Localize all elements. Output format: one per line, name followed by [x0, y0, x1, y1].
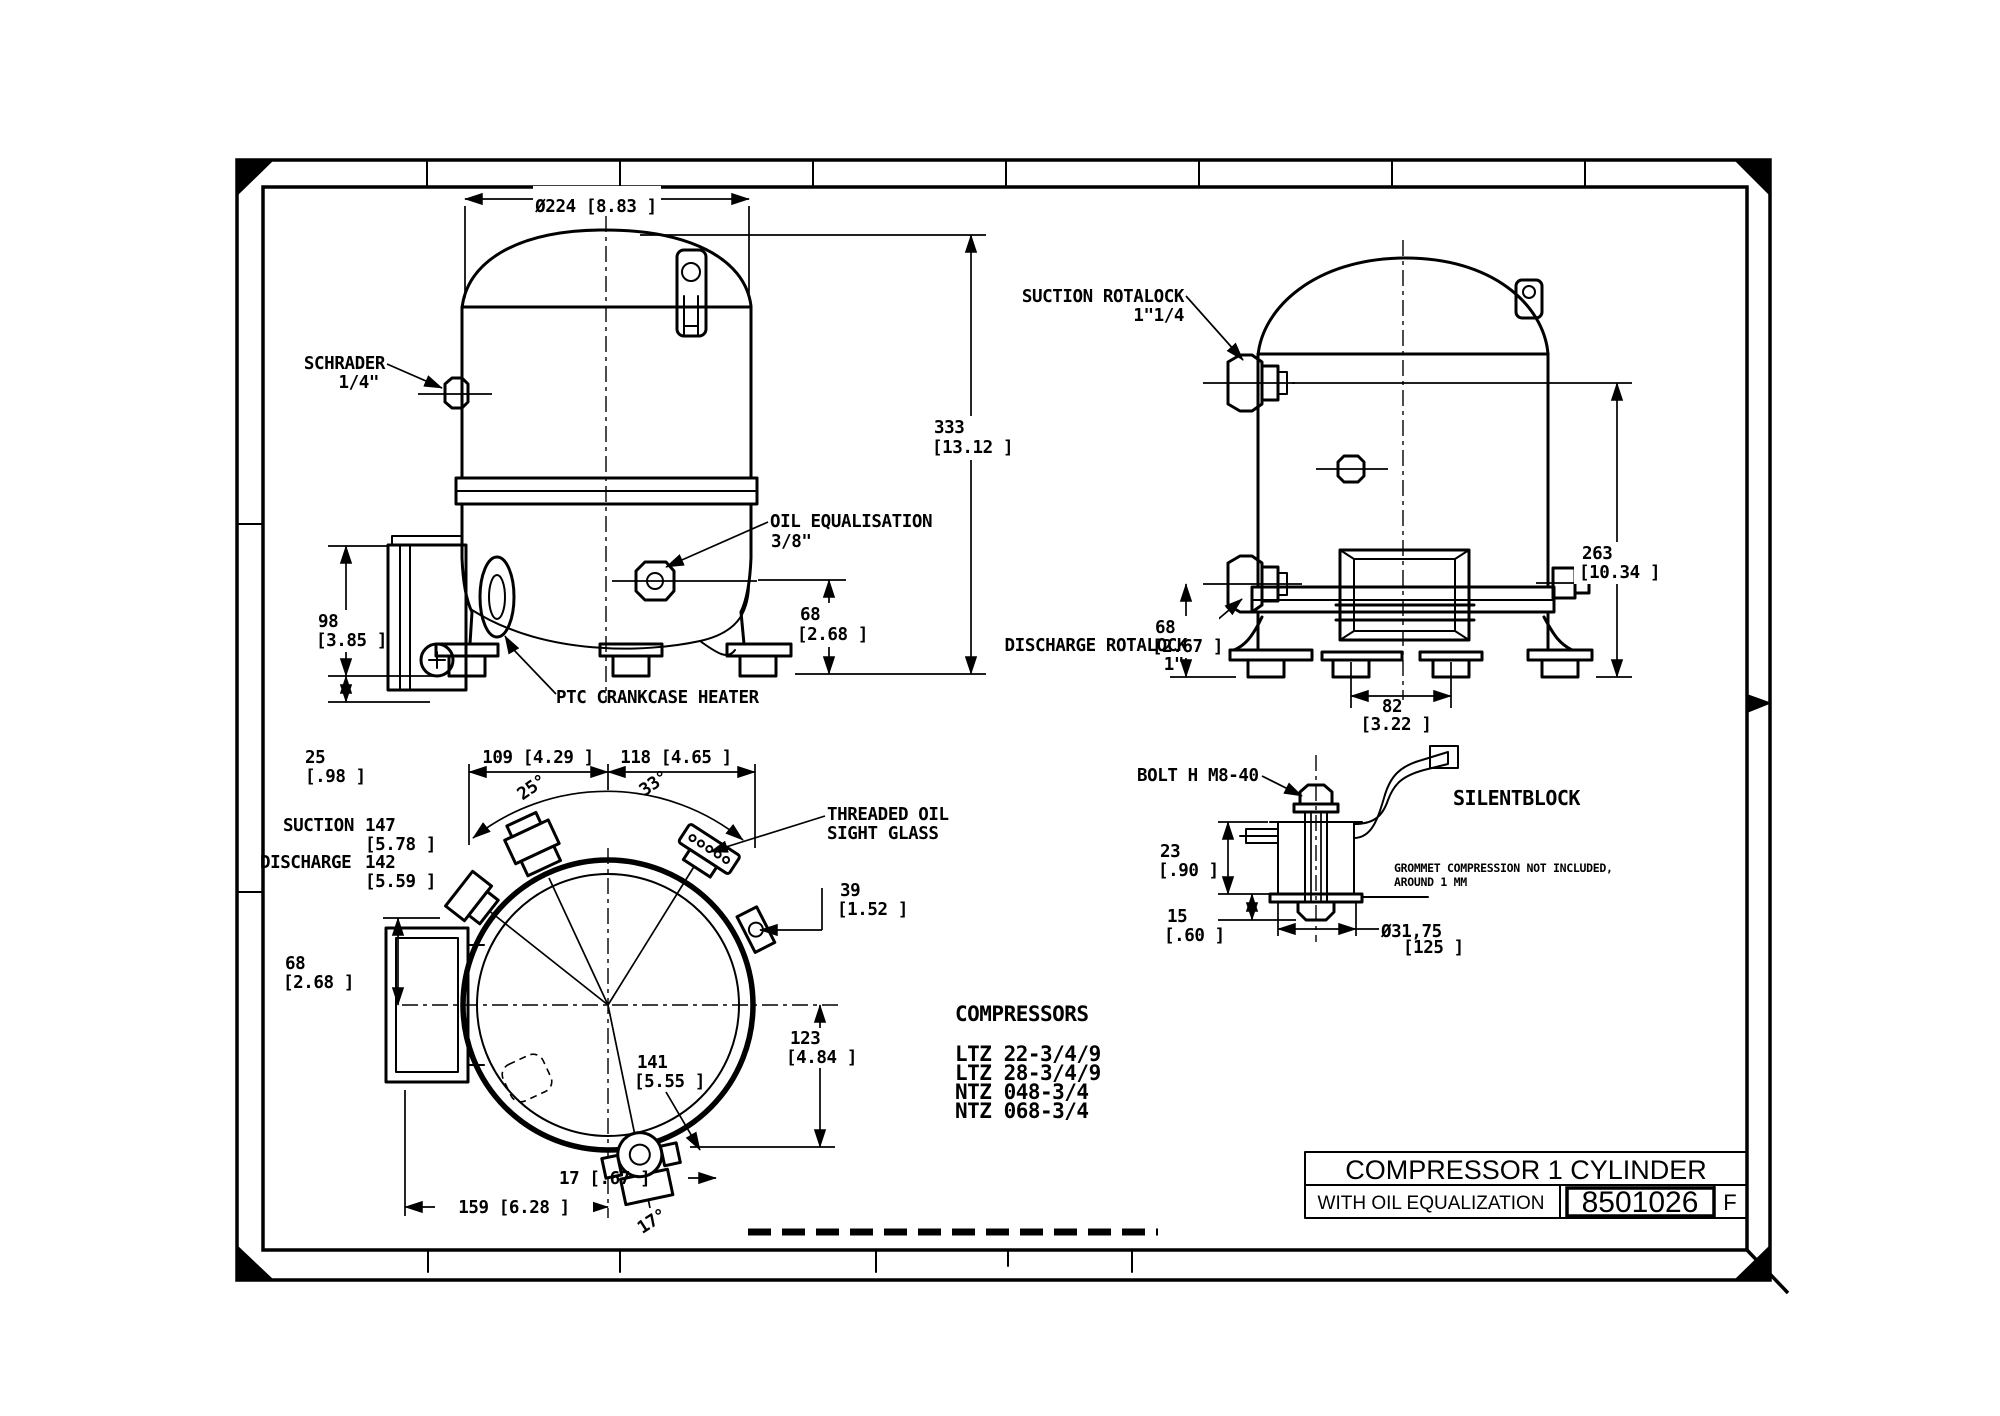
suction-height-val: 147	[365, 816, 395, 836]
frame-ticks-top	[427, 162, 1585, 186]
frame-ticks-bottom	[428, 1250, 1132, 1272]
suction-rotalock-label-2: 1"1/4	[1133, 306, 1184, 326]
dim-141: 141	[637, 1053, 667, 1073]
dim-118: 118 [4.65 ]	[620, 748, 732, 768]
dim-15: 15	[1167, 907, 1187, 927]
discharge-height-in: [5.59 ]	[365, 872, 436, 892]
dim-123: 123	[790, 1029, 820, 1049]
dim-68-front: 68	[800, 605, 820, 625]
oil-equalisation-label-2: 3/8"	[771, 532, 812, 552]
silentblock-detail	[1240, 746, 1458, 942]
dim-39-in: [1.52 ]	[837, 900, 908, 920]
dim-68-side-in: [2.67 ]	[1152, 637, 1223, 657]
schrader-label-2: 1/4"	[338, 373, 379, 393]
dim-68-side: 68	[1155, 618, 1175, 638]
dim-123-in: [4.84 ]	[786, 1048, 857, 1068]
compressor-model: NTZ 068-3/4	[955, 1099, 1089, 1123]
dim-25: 25	[305, 748, 325, 768]
bolt-label: BOLT H M8-40	[1137, 766, 1259, 786]
dim-25-in: [.98 ]	[305, 767, 366, 787]
side-view	[1203, 240, 1622, 700]
compressor-list: COMPRESSORS LTZ 22-3/4/9 LTZ 28-3/4/9 NT…	[955, 1002, 1101, 1123]
sight-glass-label-1: THREADED OIL	[827, 805, 949, 825]
discharge-height-label: DISCHARGE	[260, 853, 351, 873]
discharge-height-val: 142	[365, 853, 395, 873]
dim-15-in: [.60 ]	[1164, 926, 1225, 946]
dim-263-in: [10.34 ]	[1579, 563, 1660, 583]
drawing-sheet: Ø224 [8.83 ] SCHRADER 1/4" OIL EQUALISAT…	[0, 0, 2000, 1416]
grommet-note-1: GROMMET COMPRESSION NOT INCLUDED,	[1394, 861, 1613, 875]
dim-98: 98	[318, 612, 338, 632]
dim-159: 159 [6.28 ]	[458, 1198, 570, 1218]
grommet-note-2: AROUND 1 MM	[1394, 875, 1467, 889]
dim-17-offset: 17 [.67 ]	[559, 1169, 650, 1189]
dim-68-front-in: [2.68 ]	[797, 625, 868, 645]
ptc-heater-label: PTC CRANKCASE HEATER	[556, 688, 760, 708]
schrader-label-1: SCHRADER	[304, 354, 386, 374]
dim-82: 82	[1382, 697, 1402, 717]
drawing-number: 8501026	[1582, 1186, 1699, 1219]
drawing-title: COMPRESSOR 1 CYLINDER	[1345, 1155, 1707, 1185]
dim-dia224: Ø224 [8.83 ]	[534, 197, 657, 217]
dim-98-in: [3.85 ]	[316, 631, 387, 651]
dim-68-top: 68	[285, 954, 305, 974]
dim-109: 109 [4.29 ]	[482, 748, 594, 768]
silentblock-title: SILENTBLOCK	[1453, 786, 1580, 810]
frame-ticks-left	[239, 524, 262, 892]
sheet-frame	[237, 160, 1788, 1293]
dim-333-in: [13.12 ]	[932, 438, 1013, 458]
dim-333: 333	[934, 418, 964, 438]
dim-39: 39	[840, 881, 860, 901]
front-view	[388, 216, 791, 702]
dim-141-in: [5.55 ]	[634, 1072, 705, 1092]
discharge-rotalock-label-2: 1"	[1164, 655, 1184, 675]
dim-23-in: [.90 ]	[1158, 861, 1219, 881]
dim-82-in: [3.22 ]	[1361, 715, 1432, 735]
oil-equalisation-label-1: OIL EQUALISATION	[770, 512, 932, 532]
suction-height-in: [5.78 ]	[365, 835, 436, 855]
suction-rotalock-label-1: SUCTION ROTALOCK	[1022, 287, 1185, 307]
top-view	[386, 809, 838, 1218]
sight-glass-label-2: SIGHT GLASS	[827, 824, 939, 844]
dim-23: 23	[1160, 842, 1180, 862]
drawing-subtitle: WITH OIL EQUALIZATION	[1318, 1193, 1545, 1214]
dim-263: 263	[1582, 544, 1612, 564]
title-block: COMPRESSOR 1 CYLINDER WITH OIL EQUALIZAT…	[1305, 1152, 1747, 1219]
revision-letter: F	[1723, 1190, 1736, 1215]
engineering-drawing: Ø224 [8.83 ] SCHRADER 1/4" OIL EQUALISAT…	[0, 0, 2000, 1416]
angle-17: 17°	[634, 1205, 670, 1238]
dim-31-75-in: [125 ]	[1403, 938, 1464, 958]
dim-68-top-in: [2.68 ]	[283, 973, 354, 993]
suction-height-label: SUCTION	[283, 816, 354, 836]
compressor-list-heading: COMPRESSORS	[955, 1002, 1089, 1026]
